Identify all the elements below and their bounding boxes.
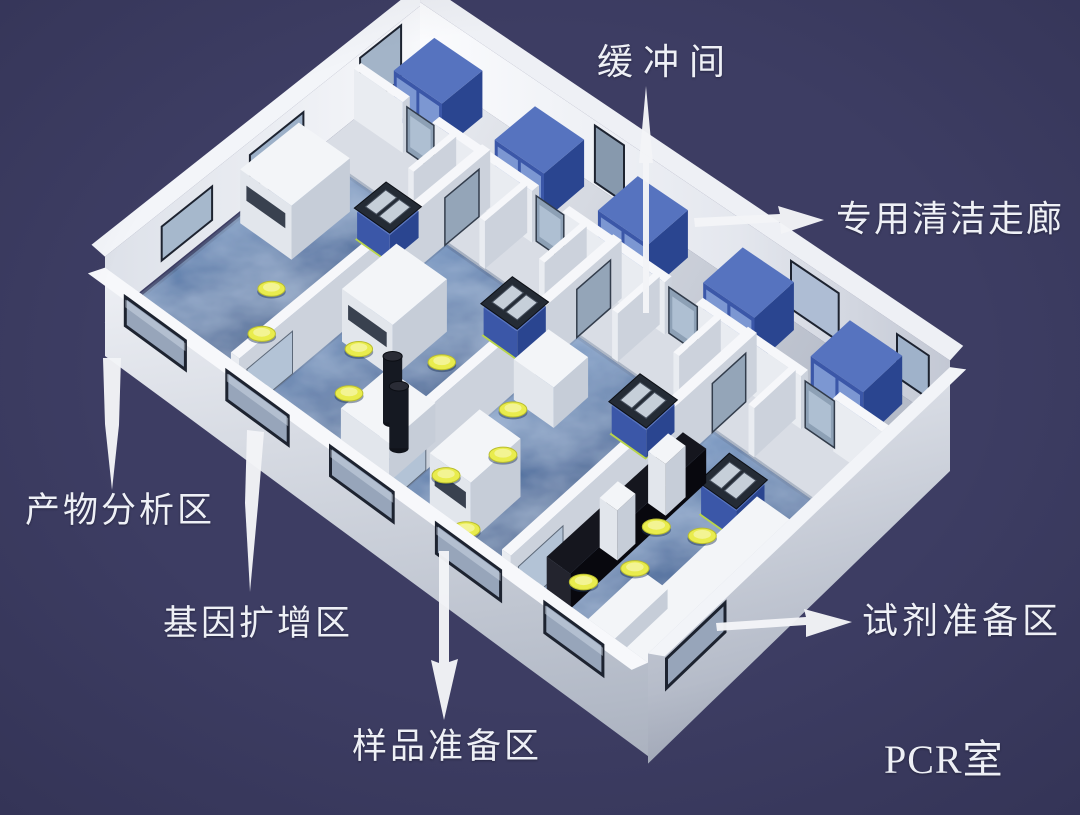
label-gene-amplification: 基因扩增区 [163, 606, 353, 641]
label-pcr-room: PCR室 [884, 740, 1004, 780]
pcr-lab-diagram: 缓冲间 专用清洁走廊 产物分析区 基因扩增区 样品准备区 试剂准备区 PCR室 [0, 0, 1080, 815]
label-buffer-room: 缓冲间 [597, 44, 735, 80]
lab-3d-scene [0, 0, 1080, 815]
label-sample-preparation: 样品准备区 [352, 729, 542, 764]
label-clean-corridor: 专用清洁走廊 [836, 201, 1064, 237]
label-reagent-preparation: 试剂准备区 [862, 603, 1062, 639]
label-product-analysis: 产物分析区 [25, 493, 215, 528]
